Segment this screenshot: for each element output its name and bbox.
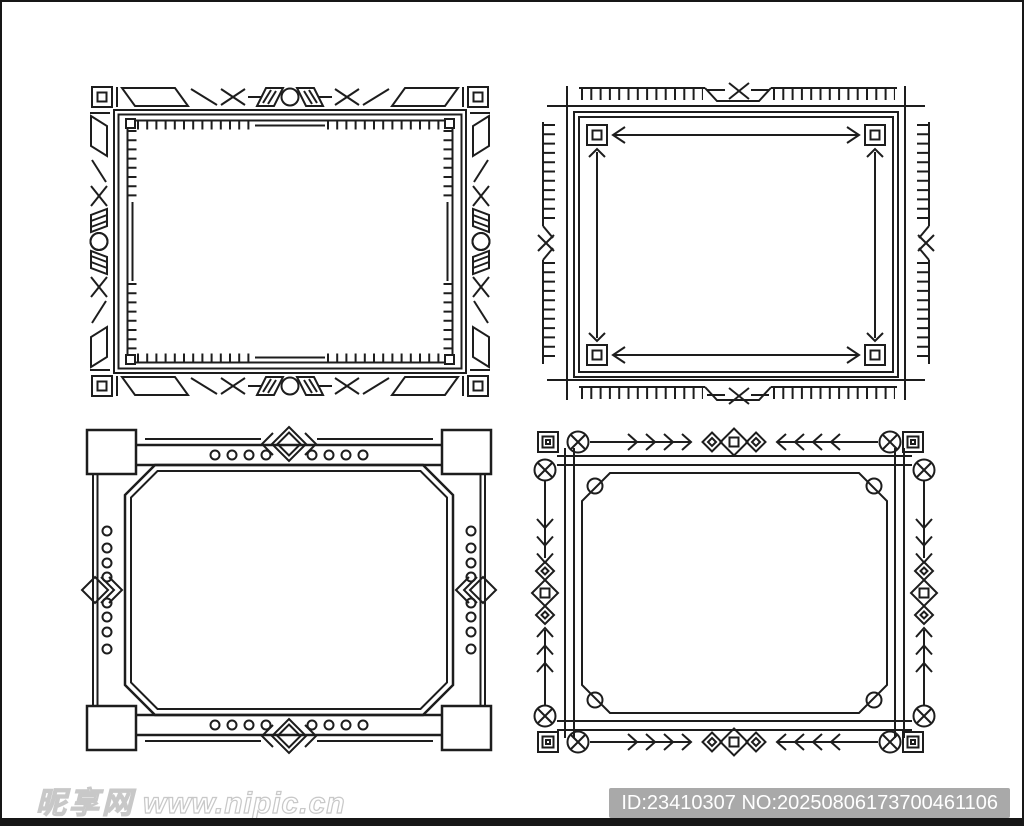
watermark-site-url: www.nipic.cn <box>143 787 346 820</box>
watermark: 昵享网www.nipic.cn <box>36 778 346 822</box>
bottom-border-bar <box>2 818 1022 826</box>
corner-block-frame-drawing <box>82 427 496 753</box>
canvas: 昵享网www.nipic.cn ID:23410307 NO:202508061… <box>0 0 1024 826</box>
tribal-arrow-frame-drawing <box>532 429 937 756</box>
frame-tribal-arrow <box>530 426 939 760</box>
frame-ruler-arrow <box>535 80 937 410</box>
watermark-site-name: 昵享网 <box>36 787 135 820</box>
ruler-arrow-frame-drawing <box>538 83 934 404</box>
art-deco-frame-drawing <box>90 87 490 396</box>
image-id-badge: ID:23410307 NO:20250806173700461106 <box>609 788 1010 818</box>
frame-art-deco <box>87 84 493 399</box>
frame-corner-blocks <box>85 427 493 753</box>
